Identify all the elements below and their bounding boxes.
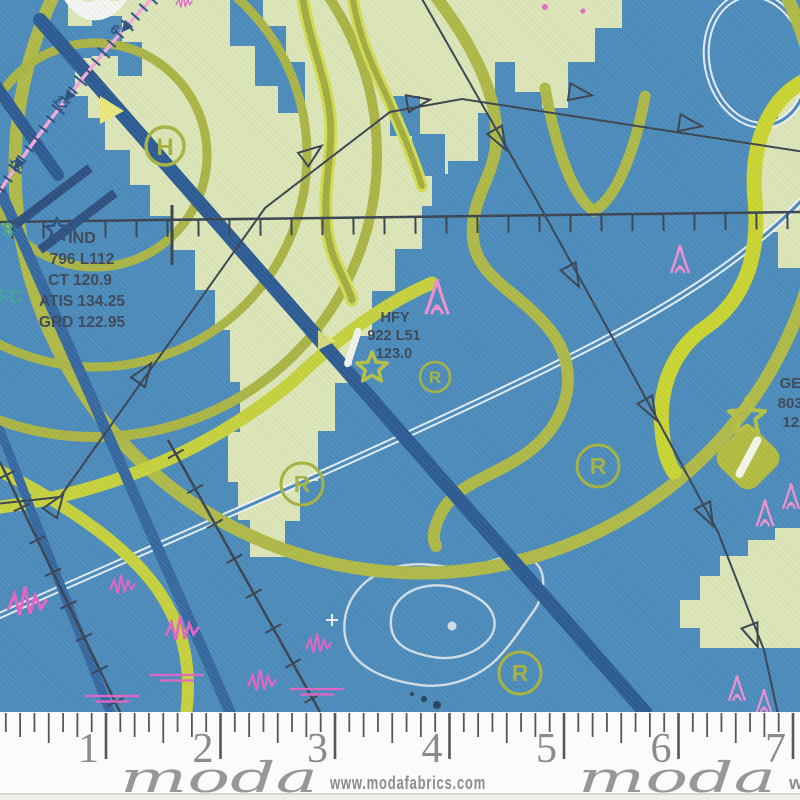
ruler-number: 6 [651, 726, 672, 772]
airport-name: IND [68, 230, 96, 247]
moda-logo: moda [120, 753, 318, 800]
airport-info: CT 120.9 [48, 272, 112, 289]
pink-mark [542, 4, 548, 10]
pink-mark [581, 9, 586, 14]
airport-name: HFY [381, 310, 410, 326]
moda-url-partial: w [788, 773, 800, 793]
registered-letter: R [590, 453, 607, 479]
lake-center-dot [448, 622, 457, 631]
ruler: moda www.modafabrics.com moda w 1234567 [0, 712, 800, 800]
registered-letter: R [429, 368, 441, 387]
registered-letter: R [512, 660, 529, 686]
ruler-number: 3 [307, 726, 328, 772]
chart-dot [410, 692, 414, 696]
moda-logo: moda [578, 753, 776, 800]
airport-info: GRD 122.95 [39, 314, 126, 331]
ruler-number: 2 [193, 726, 214, 772]
airport-info: 922 L51 [367, 328, 420, 344]
aeronautical-chart-fabric: 6 12 15 H R R R R [0, 0, 800, 800]
airport-info: 123.0 [376, 346, 412, 362]
chart-dot [433, 701, 441, 709]
ruler-number: 4 [422, 726, 443, 772]
airport-info: ATIS 134.25 [39, 293, 125, 310]
ruler-number: 1 [78, 726, 99, 772]
airspace-sfc-partial: FC [0, 287, 23, 308]
helipad-letter: H [156, 134, 173, 161]
airport-info: 122. [782, 414, 800, 431]
ruler-number: 7 [765, 726, 786, 772]
airspace-altitude-partial: 8 [2, 219, 14, 242]
registered-letter: R [294, 471, 311, 497]
fabric-swatch-photo: 6 12 15 H R R R R [0, 0, 800, 800]
chart-dot [421, 696, 427, 702]
airport-name: GEZ [780, 375, 800, 392]
airport-info: 803 L1 [778, 395, 800, 412]
ruler-number: 5 [536, 726, 557, 772]
moda-url: www.modafabrics.com [329, 773, 486, 793]
airport-info: 796 L112 [50, 251, 115, 268]
